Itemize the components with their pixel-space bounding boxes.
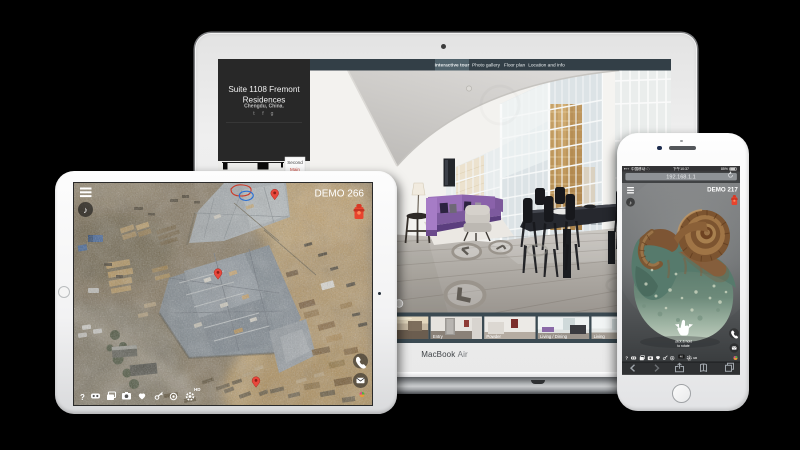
svg-text:Chengdu, China.: Chengdu, China. [244, 104, 284, 110]
svg-text:4K: 4K [679, 355, 683, 359]
svg-text:DEMO 217: DEMO 217 [707, 187, 738, 194]
svg-text:Living: Living [594, 334, 606, 339]
svg-text:HD: HD [693, 356, 697, 360]
svg-text:Photo gallery: Photo gallery [472, 63, 501, 69]
svg-text:click & hold: click & hold [675, 339, 692, 343]
svg-text:HD: HD [194, 387, 201, 392]
svg-text:下午10:37: 下午10:37 [673, 166, 689, 171]
svg-text:g: g [271, 111, 274, 117]
svg-text:85%: 85% [721, 167, 729, 171]
svg-text:Suite 1108 Fremont: Suite 1108 Fremont [228, 85, 300, 94]
svg-text:♪: ♪ [83, 205, 88, 215]
svg-text:Interactive tour: Interactive tour [435, 63, 470, 69]
svg-text:192.168.1.1: 192.168.1.1 [666, 175, 695, 181]
svg-text:中国移动 ☁: 中国移动 ☁ [631, 166, 650, 171]
svg-text:?: ? [625, 356, 628, 361]
svg-text:♪: ♪ [629, 200, 632, 206]
svg-text:Living / Dining: Living / Dining [540, 334, 568, 339]
svg-text:DEMO 266: DEMO 266 [315, 189, 365, 200]
svg-text:Powder: Powder [486, 334, 501, 339]
svg-text:?: ? [80, 393, 85, 402]
svg-text:Second: Second [287, 160, 303, 165]
svg-text:Floor plan: Floor plan [504, 63, 526, 69]
svg-text:Entry: Entry [433, 334, 444, 339]
svg-text:Location and info: Location and info [528, 63, 565, 69]
svg-text:to rotate: to rotate [677, 344, 690, 348]
